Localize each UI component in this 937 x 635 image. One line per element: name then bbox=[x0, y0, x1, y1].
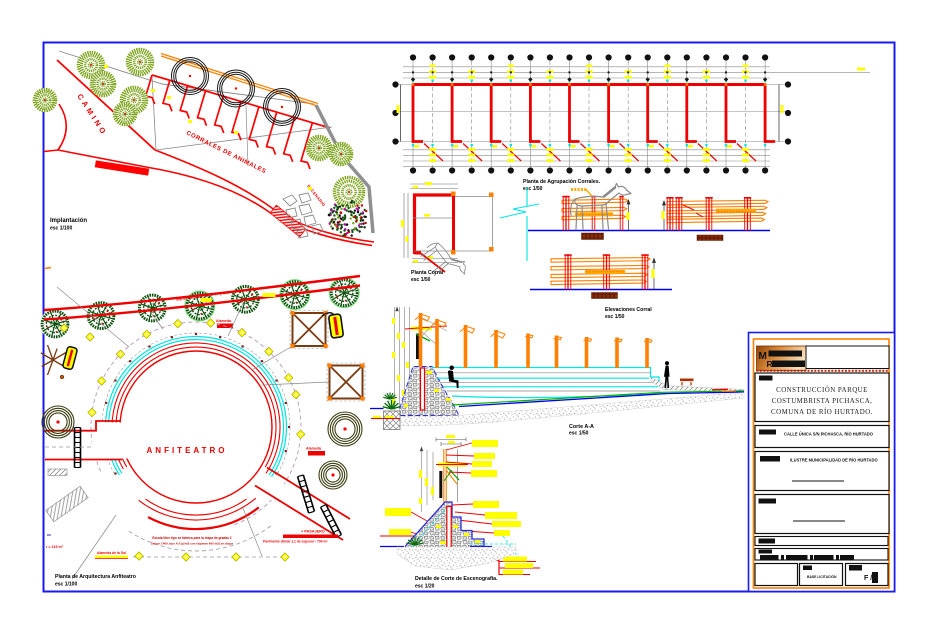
svg-text:Alameda: Alameda bbox=[216, 319, 232, 323]
svg-text:un: un bbox=[47, 533, 51, 537]
svg-text:COSTUMBRISTA PICHASCA,: COSTUMBRISTA PICHASCA, bbox=[772, 398, 873, 405]
svg-text:ANFITEATRO: ANFITEATRO bbox=[147, 446, 228, 455]
svg-text:Detalle de Corte de Escenograf: Detalle de Corte de Escenografía. bbox=[415, 576, 498, 582]
svg-text:esc 1/100: esc 1/100 bbox=[50, 226, 72, 232]
svg-text:esc 1/100: esc 1/100 bbox=[55, 582, 77, 588]
svg-text:COMUNA DE RÍO HURTADO.: COMUNA DE RÍO HURTADO. bbox=[771, 408, 873, 416]
svg-text:BASE LICITACIÓN: BASE LICITACIÓN bbox=[807, 574, 837, 579]
svg-text:Sector 1400, tipo A-2 (p/m2 co: Sector 1400, tipo A-2 (p/m2 con régimen … bbox=[151, 542, 234, 546]
svg-text:Implantación: Implantación bbox=[50, 218, 87, 224]
svg-text:esc 1/50: esc 1/50 bbox=[569, 431, 589, 437]
svg-text:ILUSTRE MUNICIPALIDAD DE RÍO H: ILUSTRE MUNICIPALIDAD DE RÍO HURTADO bbox=[790, 458, 878, 463]
svg-text:Planta Corral: Planta Corral bbox=[411, 270, 444, 276]
svg-text:F /: F / bbox=[864, 575, 872, 582]
svg-text:esc 1/20: esc 1/20 bbox=[415, 584, 435, 590]
svg-text:Corte A-A: Corte A-A bbox=[569, 424, 594, 430]
svg-text:esc 1/50: esc 1/50 bbox=[605, 314, 625, 320]
svg-text:Alameda: Alameda bbox=[306, 447, 322, 451]
svg-text:+ PASAJERO: + PASAJERO bbox=[301, 530, 325, 534]
svg-text:Pavimento dimde 1.1 de espesor: Pavimento dimde 1.1 de espesor - 794 m² bbox=[263, 540, 328, 544]
svg-text:R: R bbox=[767, 359, 773, 369]
svg-text:esc 1/50: esc 1/50 bbox=[523, 186, 543, 192]
svg-text:esc 1/50: esc 1/50 bbox=[411, 277, 431, 283]
svg-text:r = 219 m²: r = 219 m² bbox=[46, 545, 64, 549]
svg-text:Planta de Agrupación Corrales.: Planta de Agrupación Corrales. bbox=[523, 179, 601, 185]
svg-text:Escala libre tipo se fabrica p: Escala libre tipo se fabrica para la eta… bbox=[152, 536, 231, 540]
svg-text:Planta de Arquitectura Anfitea: Planta de Arquitectura Anfiteatro bbox=[55, 574, 136, 580]
svg-text:CALLE ÚNICA S/N PICHASCA, RÍO: CALLE ÚNICA S/N PICHASCA, RÍO HURTADO bbox=[784, 432, 874, 437]
svg-text:Alameda de la Sol: Alameda de la Sol bbox=[97, 551, 126, 555]
svg-text:CONSTRUCCIÓN PARQUE: CONSTRUCCIÓN PARQUE bbox=[776, 386, 868, 394]
svg-text:Elevaciones Corral: Elevaciones Corral bbox=[605, 307, 652, 313]
